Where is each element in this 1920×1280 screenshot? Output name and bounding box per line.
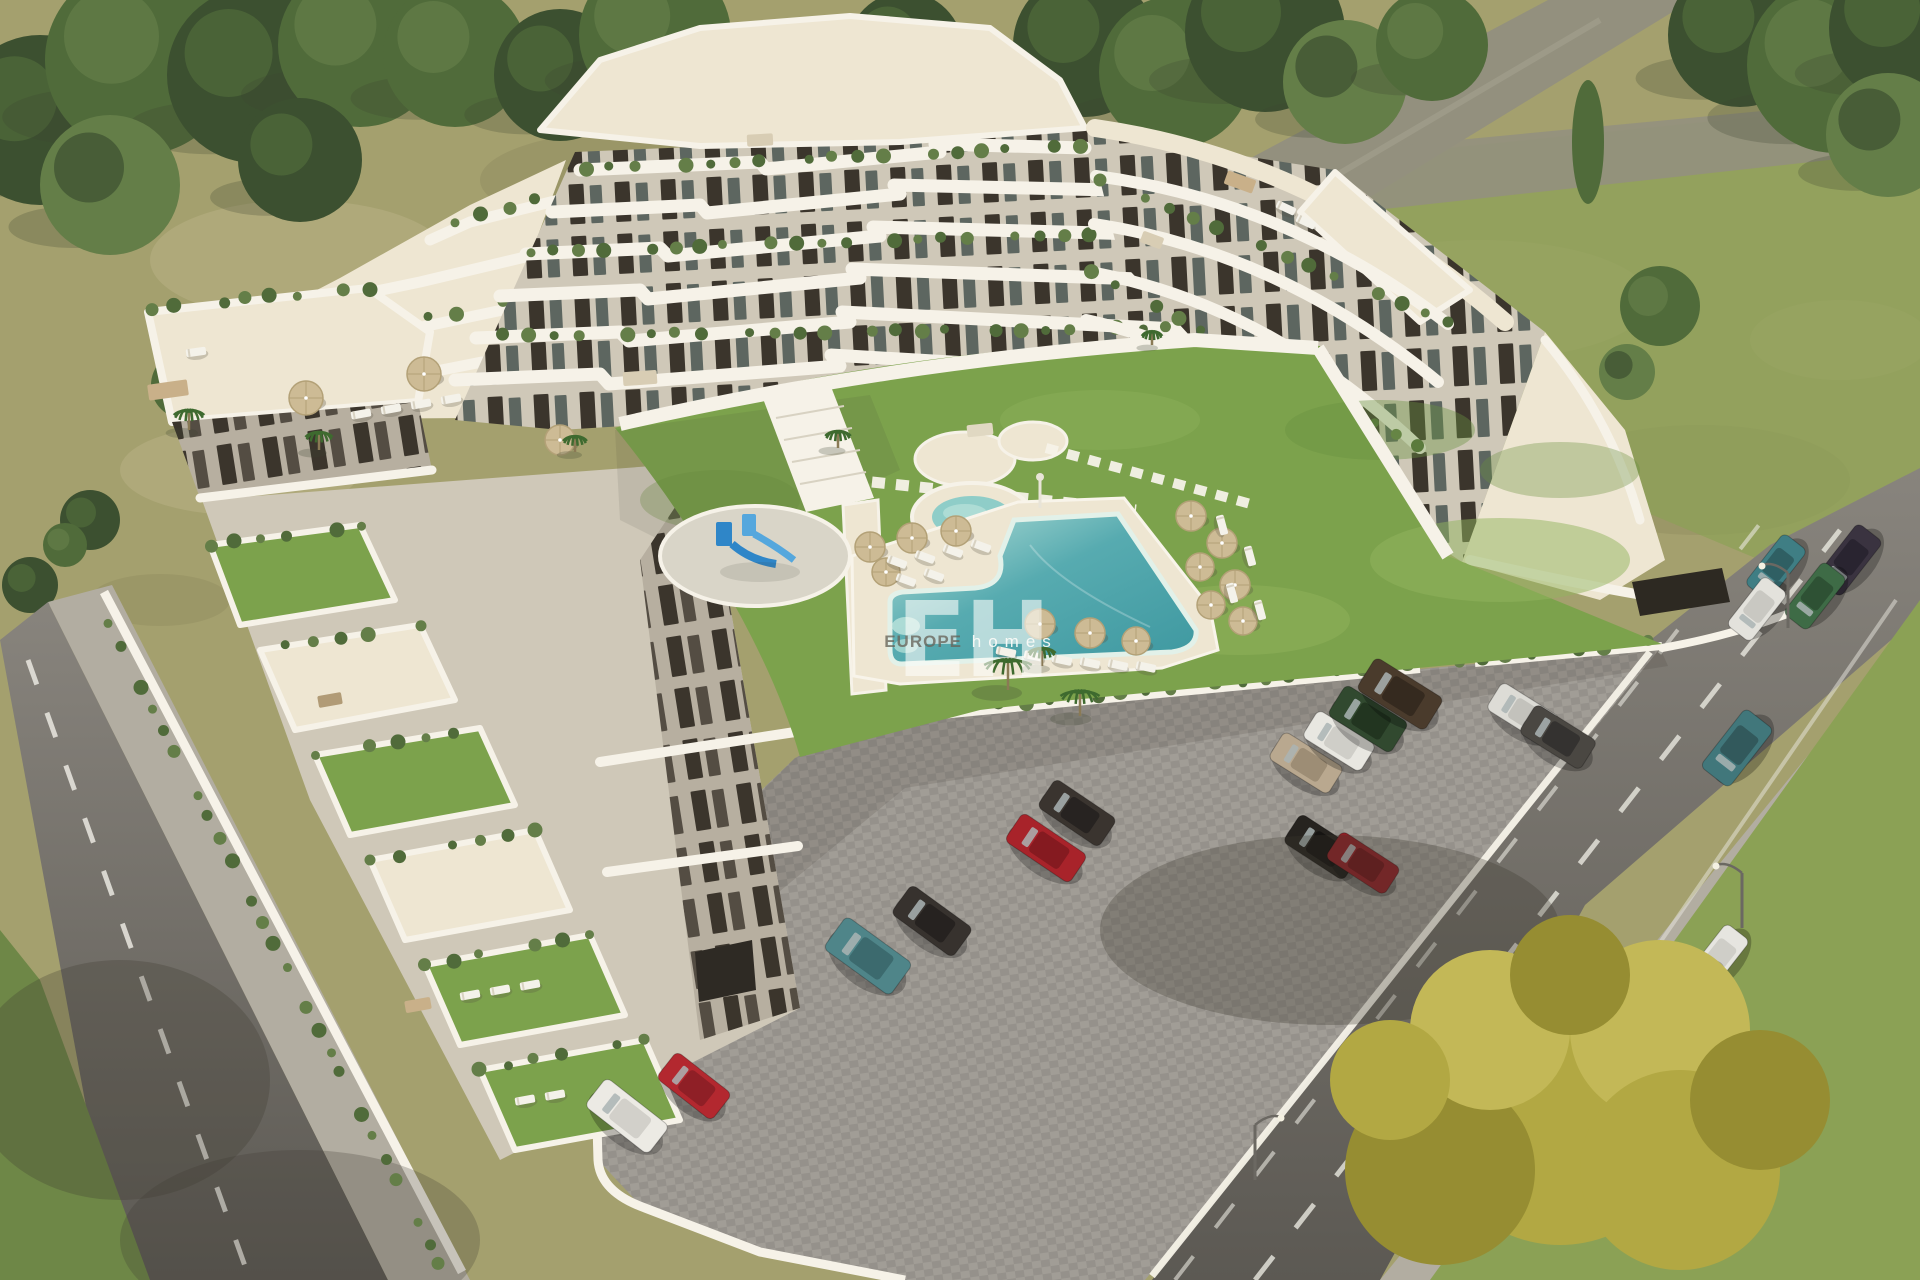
tree [1599,344,1655,400]
architectural-render: EH EUROPE homes [0,0,1920,1280]
left-roof-terrace [146,282,433,498]
render-canvas [0,0,1920,1280]
terrace-furniture-item [623,370,658,386]
round-patio-small [999,422,1067,460]
playground [660,506,850,606]
terrace-furniture-item [747,133,774,146]
poplar-tree [1572,80,1604,204]
tree [1620,266,1700,346]
tree [43,523,87,567]
